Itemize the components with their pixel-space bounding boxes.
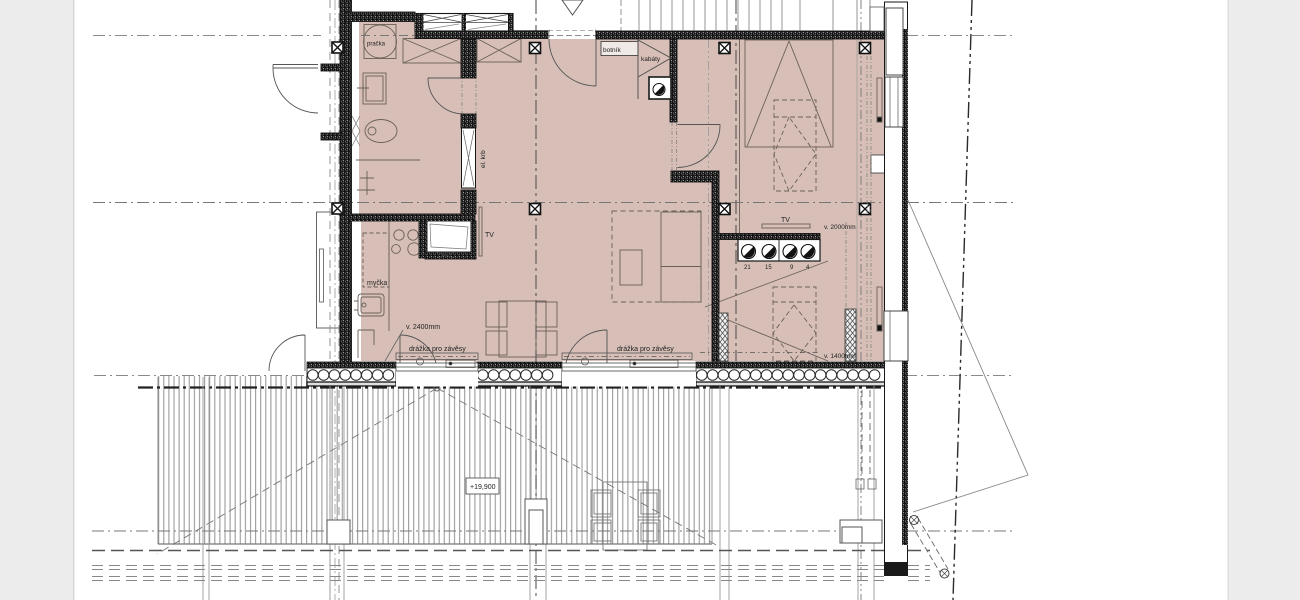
svg-text:pračka: pračka bbox=[367, 42, 386, 48]
svg-text:v. 2400mm: v. 2400mm bbox=[406, 324, 440, 331]
svg-text:21: 21 bbox=[744, 265, 751, 271]
svg-text:+19,900: +19,900 bbox=[470, 484, 496, 491]
svg-text:drážka pro závěsy: drážka pro závěsy bbox=[617, 346, 674, 353]
svg-text:el. krb: el. krb bbox=[480, 150, 487, 168]
svg-text:myčka: myčka bbox=[367, 280, 387, 287]
svg-text:15: 15 bbox=[765, 265, 772, 271]
svg-text:TV: TV bbox=[781, 217, 790, 224]
svg-text:kabáty: kabáty bbox=[641, 56, 661, 63]
svg-text:botník: botník bbox=[603, 47, 621, 54]
svg-text:v. 1400mm: v. 1400mm bbox=[824, 353, 856, 360]
svg-text:v. 2000mm: v. 2000mm bbox=[824, 224, 856, 231]
svg-text:TV: TV bbox=[485, 232, 494, 239]
svg-text:drážka pro závěsy: drážka pro závěsy bbox=[409, 346, 466, 353]
